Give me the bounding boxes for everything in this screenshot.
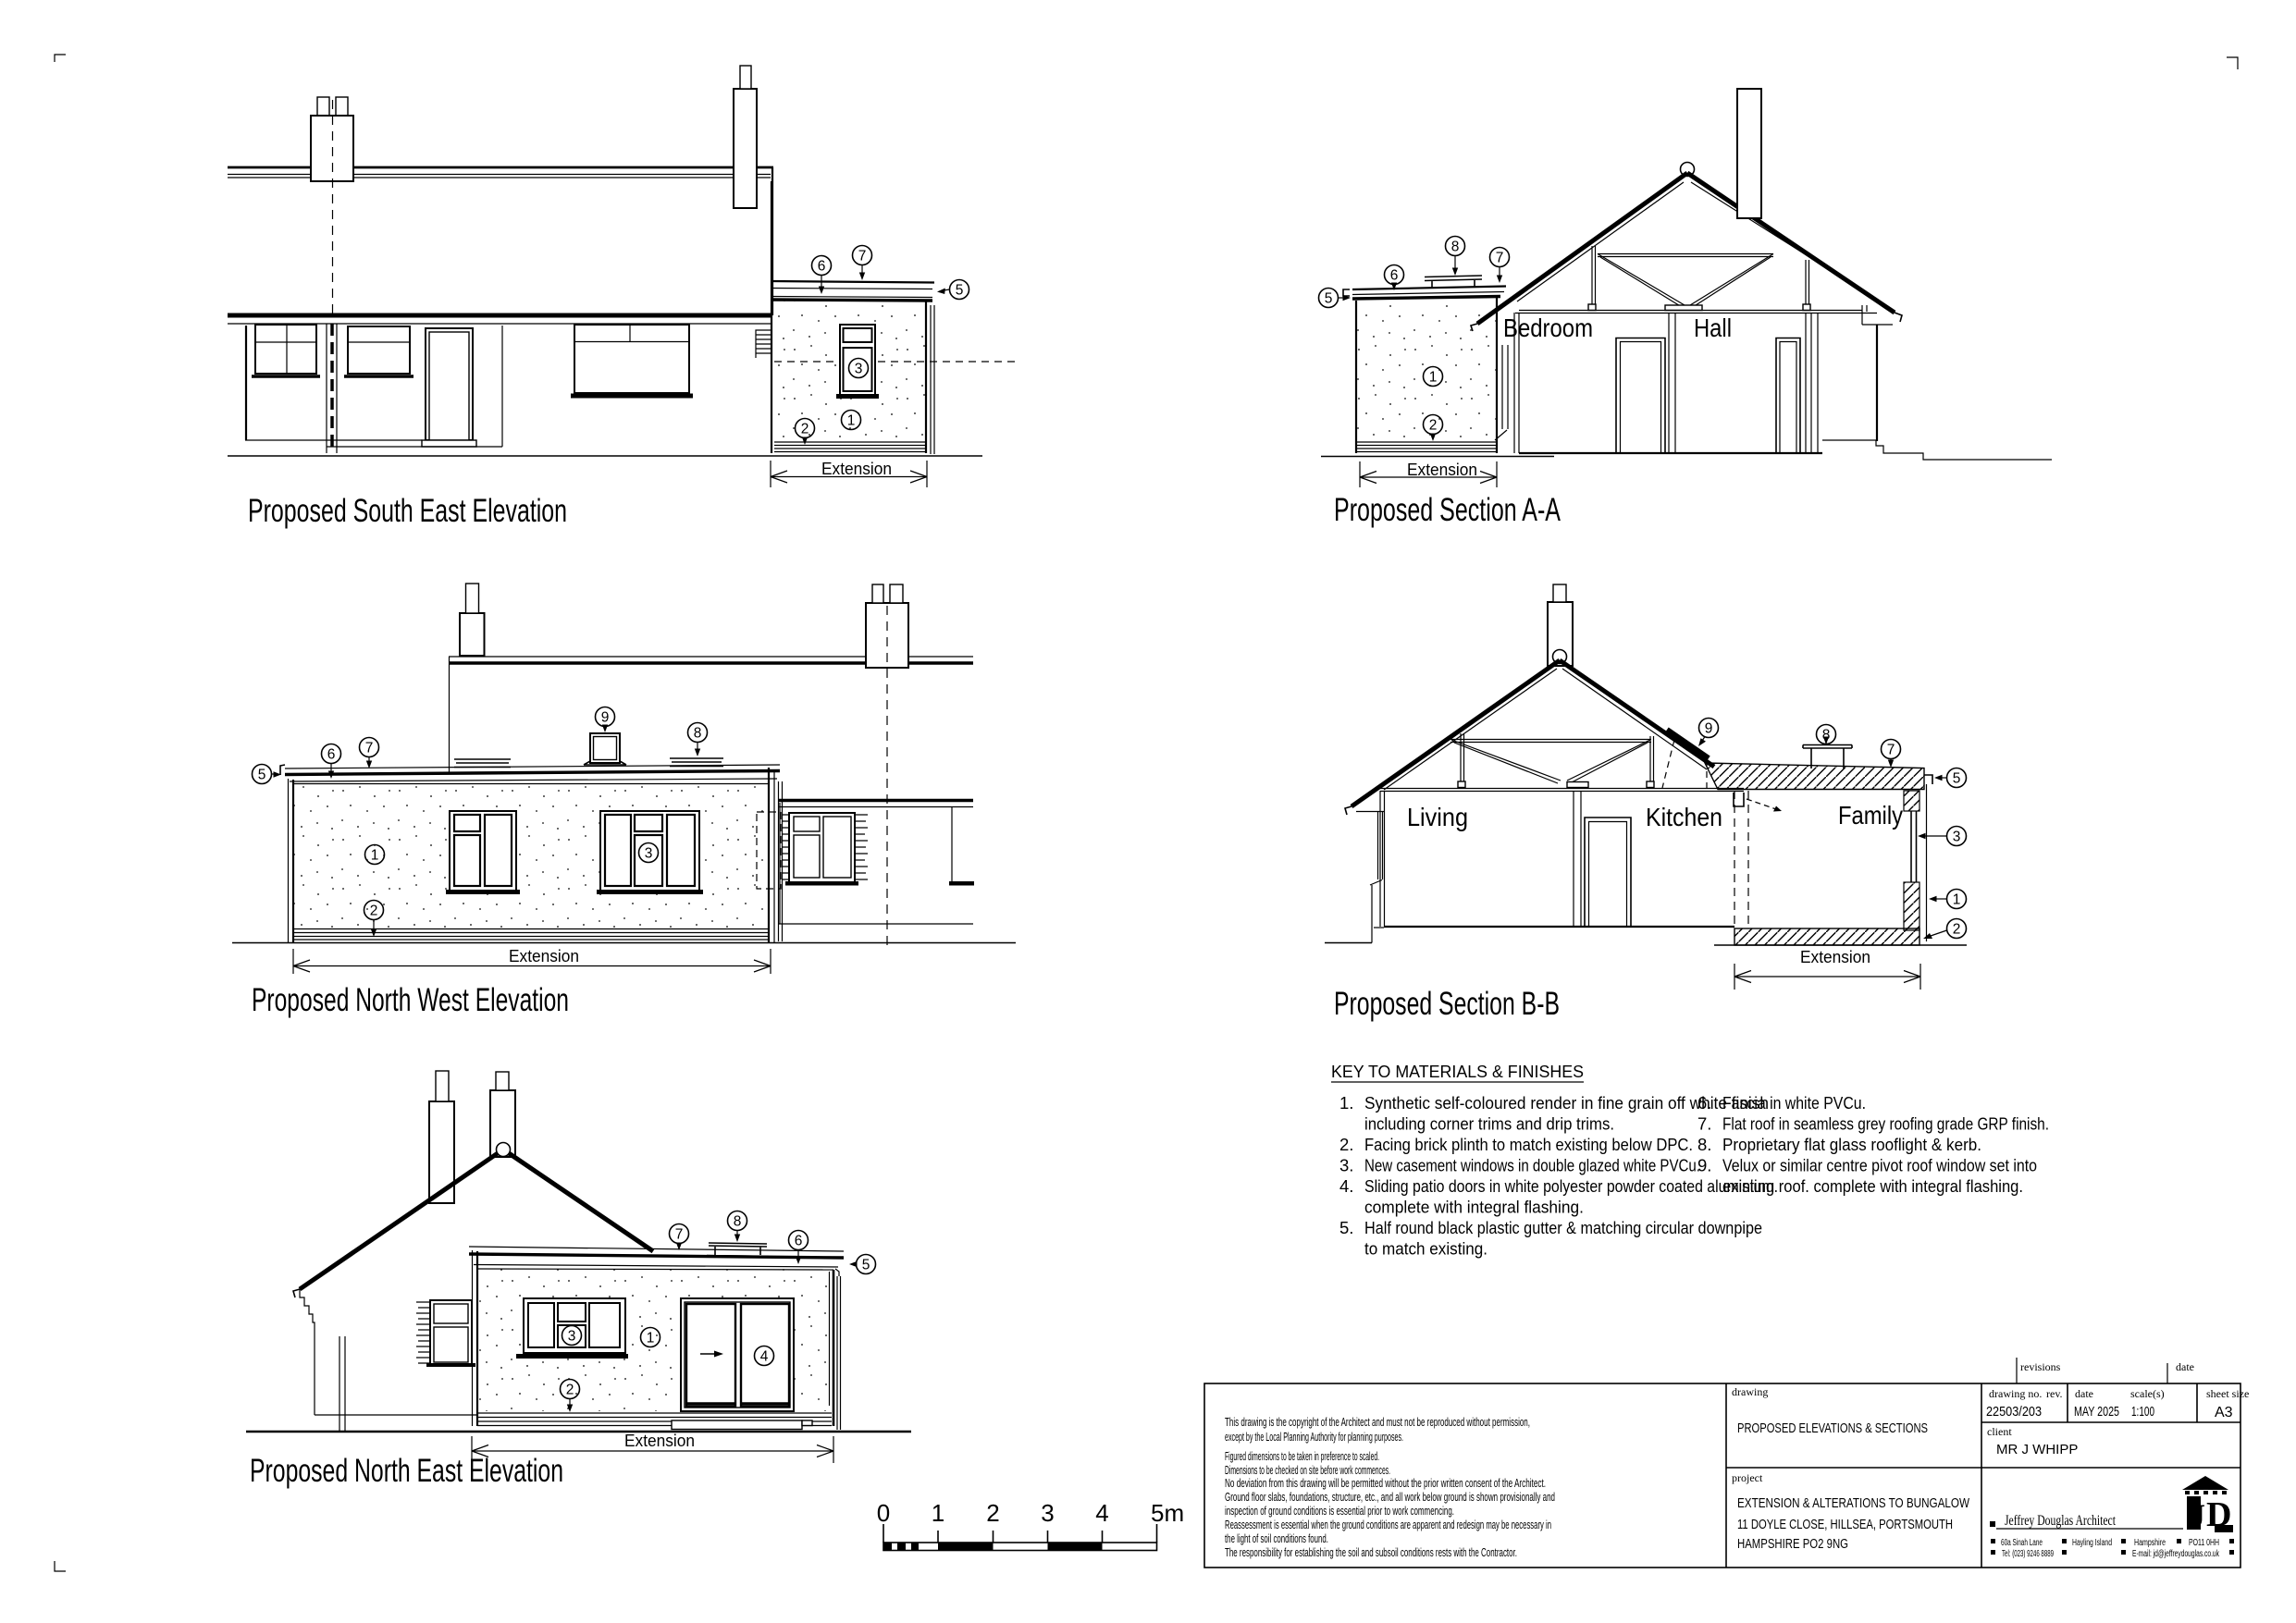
svg-text:1.: 1. xyxy=(1339,1093,1353,1113)
svg-text:Half round black plastic gutte: Half round black plastic gutter & matchi… xyxy=(1364,1218,1762,1237)
svg-text:8: 8 xyxy=(1451,240,1460,255)
svg-text:This drawing is the copyright: This drawing is the copyright of the Arc… xyxy=(1225,1416,1530,1429)
svg-text:7: 7 xyxy=(1496,251,1504,266)
svg-text:4.: 4. xyxy=(1339,1176,1353,1196)
svg-text:5: 5 xyxy=(862,1258,870,1273)
svg-text:6: 6 xyxy=(1390,268,1399,284)
svg-text:1: 1 xyxy=(371,848,379,864)
svg-text:inspection of ground condition: inspection of ground conditions is essen… xyxy=(1225,1505,1454,1518)
svg-text:date: date xyxy=(2075,1387,2093,1400)
svg-text:Facing brick plinth to match e: Facing brick plinth to match existing be… xyxy=(1364,1135,1693,1154)
svg-text:Sliding patio doors in white p: Sliding patio doors in white polyester p… xyxy=(1364,1176,1778,1196)
svg-text:sheet size: sheet size xyxy=(2206,1387,2249,1400)
svg-text:Velux or similar centre pivot: Velux or similar centre pivot roof windo… xyxy=(1722,1156,2037,1175)
svg-text:Flat roof in seamless grey roo: Flat roof in seamless grey roofing grade… xyxy=(1722,1114,2049,1134)
svg-text:4: 4 xyxy=(1095,1499,1108,1527)
svg-text:6: 6 xyxy=(327,747,336,763)
svg-text:Proposed North East Elevation: Proposed North East Elevation xyxy=(250,1453,563,1489)
svg-text:3: 3 xyxy=(568,1329,576,1345)
svg-text:Tel: (023) 9246 8889: Tel: (023) 9246 8889 xyxy=(2002,1549,2054,1559)
svg-text:rev.: rev. xyxy=(2046,1387,2063,1400)
svg-text:2: 2 xyxy=(1953,922,1961,938)
svg-text:Hayling Island: Hayling Island xyxy=(2072,1538,2112,1548)
svg-text:9: 9 xyxy=(1705,721,1713,737)
svg-text:PROPOSED ELEVATIONS & SECTIONS: PROPOSED ELEVATIONS & SECTIONS xyxy=(1737,1420,1928,1436)
svg-text:the light of soil conditions f: the light of soil conditions found. xyxy=(1225,1532,1328,1545)
svg-text:Ground floor slabs, foundation: Ground floor slabs, foundations, structu… xyxy=(1225,1491,1555,1504)
svg-text:No deviation from this drawing: No deviation from this drawing will be p… xyxy=(1225,1477,1546,1490)
svg-text:revisions: revisions xyxy=(2020,1360,2061,1373)
svg-text:Extension: Extension xyxy=(624,1431,695,1450)
svg-text:8.: 8. xyxy=(1697,1135,1711,1154)
svg-text:Fascia in white PVCu.: Fascia in white PVCu. xyxy=(1722,1093,1866,1113)
svg-text:1: 1 xyxy=(847,413,856,429)
svg-text:Proprietary flat glass rooflig: Proprietary flat glass rooflight & kerb. xyxy=(1722,1135,1981,1154)
svg-text:Proposed North West Elevation: Proposed North West Elevation xyxy=(252,982,569,1018)
svg-text:3: 3 xyxy=(1041,1499,1054,1527)
svg-text:A3: A3 xyxy=(2215,1405,2233,1420)
svg-text:Reassessment is essential when: Reassessment is essential when the groun… xyxy=(1225,1518,1551,1531)
svg-text:Figured dimensions to be taken: Figured dimensions to be taken in prefer… xyxy=(1225,1450,1379,1463)
svg-text:Kitchen: Kitchen xyxy=(1646,803,1722,831)
svg-text:5: 5 xyxy=(956,283,964,299)
svg-text:1: 1 xyxy=(647,1331,655,1346)
svg-text:2: 2 xyxy=(1429,418,1438,434)
svg-text:7: 7 xyxy=(675,1227,684,1243)
svg-text:The responsibility for establi: The responsibility for establishing the … xyxy=(1225,1546,1517,1559)
svg-text:Living: Living xyxy=(1407,803,1468,831)
svg-text:drawing: drawing xyxy=(1732,1385,1768,1398)
svg-text:Family: Family xyxy=(1838,801,1903,830)
svg-text:5m: 5m xyxy=(1151,1499,1184,1527)
svg-text:7: 7 xyxy=(858,249,867,264)
svg-text:client: client xyxy=(1987,1425,2012,1438)
svg-text:5: 5 xyxy=(258,768,266,783)
svg-text:Hampshire: Hampshire xyxy=(2134,1538,2166,1548)
svg-text:6: 6 xyxy=(818,259,826,275)
svg-text:2.: 2. xyxy=(1339,1135,1353,1154)
svg-text:1: 1 xyxy=(1953,892,1961,908)
svg-text:Extension: Extension xyxy=(1800,947,1870,966)
svg-text:1: 1 xyxy=(1429,370,1438,386)
svg-text:5: 5 xyxy=(1953,771,1961,787)
svg-text:E-mail: jd@jeffreydouglas.co.u: E-mail: jd@jeffreydouglas.co.uk xyxy=(2132,1549,2220,1559)
svg-text:scale(s): scale(s) xyxy=(2130,1387,2165,1400)
svg-text:MAY 2025: MAY 2025 xyxy=(2074,1404,2119,1420)
svg-text:3: 3 xyxy=(1953,830,1961,845)
svg-text:date: date xyxy=(2176,1360,2194,1373)
svg-text:7: 7 xyxy=(365,741,374,756)
svg-text:5.: 5. xyxy=(1339,1218,1353,1237)
svg-text:8: 8 xyxy=(694,726,702,742)
svg-text:6.: 6. xyxy=(1697,1093,1711,1113)
svg-text:complete with integral flashin: complete with integral flashing. xyxy=(1364,1198,1584,1217)
svg-text:HAMPSHIRE PO2 9NG: HAMPSHIRE PO2 9NG xyxy=(1737,1536,1848,1552)
svg-text:7.: 7. xyxy=(1697,1114,1711,1134)
svg-text:3: 3 xyxy=(855,362,863,377)
svg-text:to match existing.: to match existing. xyxy=(1364,1239,1487,1259)
svg-text:2: 2 xyxy=(370,904,378,919)
svg-text:6: 6 xyxy=(795,1234,803,1249)
svg-text:drawing no.: drawing no. xyxy=(1989,1387,2042,1400)
svg-text:Proposed South East Elevation: Proposed South East Elevation xyxy=(248,493,567,529)
svg-text:22503/203: 22503/203 xyxy=(1986,1404,2042,1420)
svg-text:except by the Local Planning A: except by the Local Planning Authority f… xyxy=(1225,1431,1403,1444)
svg-text:2: 2 xyxy=(801,422,809,437)
svg-text:4: 4 xyxy=(760,1349,769,1365)
svg-text:8: 8 xyxy=(734,1214,742,1230)
svg-text:Bedroom: Bedroom xyxy=(1503,314,1593,342)
svg-text:7: 7 xyxy=(1887,743,1895,758)
svg-text:existing roof. complete with i: existing roof. complete with integral fl… xyxy=(1722,1176,2023,1196)
svg-text:Jeffrey Douglas Architect: Jeffrey Douglas Architect xyxy=(2005,1513,2116,1529)
svg-text:MR J WHIPP: MR J WHIPP xyxy=(1996,1442,2078,1457)
svg-text:Extension: Extension xyxy=(821,459,892,478)
svg-text:New casement windows in double: New casement windows in double glazed wh… xyxy=(1364,1156,1700,1175)
svg-text:3.: 3. xyxy=(1339,1156,1353,1175)
svg-text:including corner trims and dri: including corner trims and drip trims. xyxy=(1364,1114,1614,1134)
svg-text:Extension: Extension xyxy=(509,946,579,965)
svg-text:11 DOYLE CLOSE, HILLSEA, PORTS: 11 DOYLE CLOSE, HILLSEA, PORTSMOUTH xyxy=(1737,1517,1953,1532)
svg-text:0: 0 xyxy=(877,1499,890,1527)
svg-text:EXTENSION & ALTERATIONS TO BUN: EXTENSION & ALTERATIONS TO BUNGALOW xyxy=(1737,1495,1970,1511)
svg-text:Proposed Section B-B: Proposed Section B-B xyxy=(1334,986,1560,1022)
svg-text:5: 5 xyxy=(1325,291,1333,307)
svg-text:1:100: 1:100 xyxy=(2131,1404,2154,1420)
svg-text:Proposed Section A-A: Proposed Section A-A xyxy=(1334,492,1561,528)
svg-text:60a Sinah Lane: 60a Sinah Lane xyxy=(2001,1538,2043,1548)
svg-text:project: project xyxy=(1732,1471,1763,1484)
svg-text:2: 2 xyxy=(986,1499,999,1527)
svg-text:9: 9 xyxy=(601,710,610,726)
svg-text:J: J xyxy=(2189,1497,2205,1534)
svg-text:3: 3 xyxy=(645,846,653,862)
svg-text:2: 2 xyxy=(566,1383,574,1398)
svg-text:Extension: Extension xyxy=(1407,460,1477,479)
svg-text:9.: 9. xyxy=(1697,1156,1711,1175)
svg-text:Hall: Hall xyxy=(1694,314,1732,342)
svg-text:KEY TO MATERIALS & FINISHES: KEY TO MATERIALS & FINISHES xyxy=(1331,1062,1584,1081)
svg-text:1: 1 xyxy=(932,1499,944,1527)
svg-text:Dimensions to be checked on si: Dimensions to be checked on site before … xyxy=(1225,1464,1390,1477)
svg-text:PO11 0HH: PO11 0HH xyxy=(2189,1538,2219,1548)
